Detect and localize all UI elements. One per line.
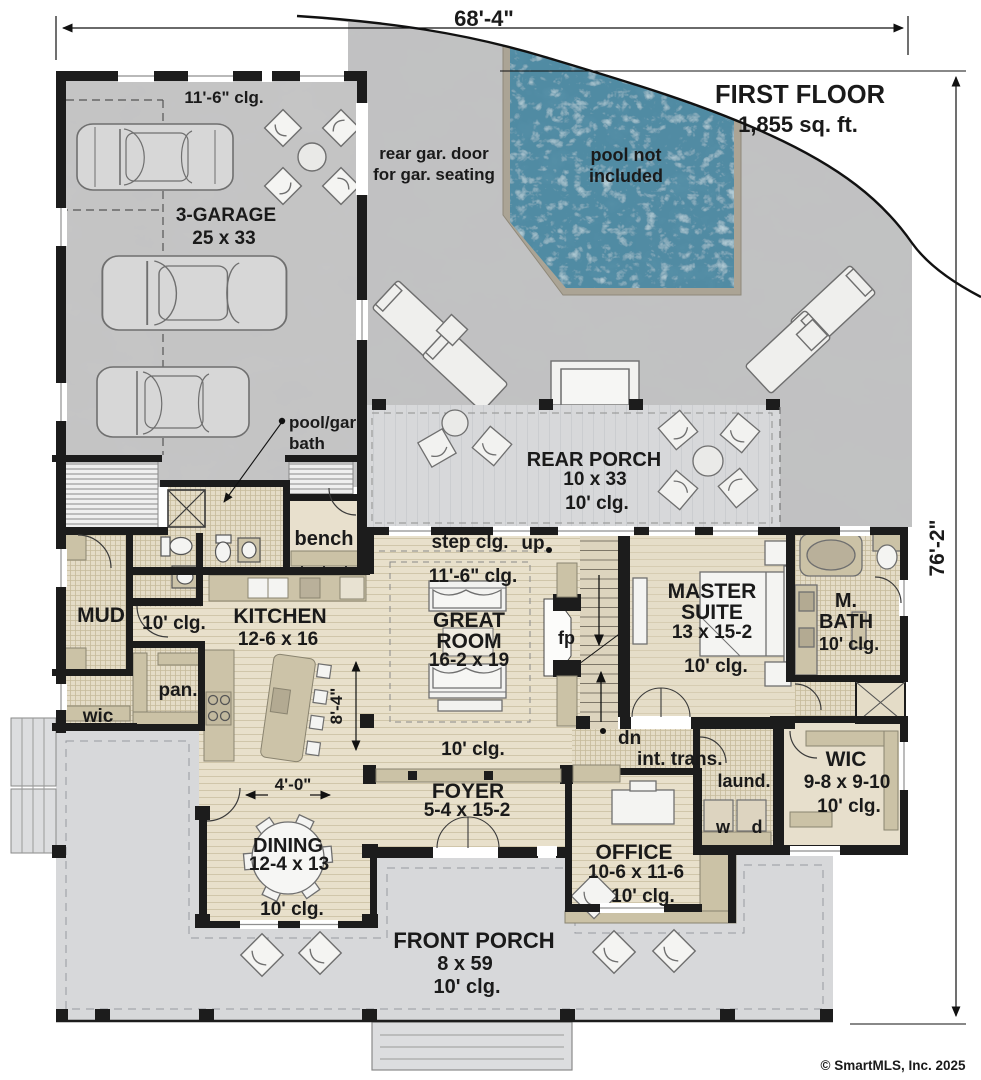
svg-text:25 x 33: 25 x 33 xyxy=(192,228,255,249)
svg-text:bath: bath xyxy=(289,434,325,453)
svg-text:13 x 15-2: 13 x 15-2 xyxy=(672,622,752,643)
svg-text:© SmartMLS, Inc. 2025: © SmartMLS, Inc. 2025 xyxy=(821,1058,966,1073)
svg-text:w: w xyxy=(715,817,731,837)
svg-text:OFFICE: OFFICE xyxy=(596,841,673,864)
svg-text:10' clg.: 10' clg. xyxy=(684,656,748,677)
svg-text:68'-4": 68'-4" xyxy=(454,6,514,31)
svg-text:FRONT PORCH: FRONT PORCH xyxy=(393,928,554,953)
svg-text:10-6 x 11-6: 10-6 x 11-6 xyxy=(588,862,684,883)
svg-text:wic: wic xyxy=(82,706,114,727)
svg-text:12-4 x 13: 12-4 x 13 xyxy=(249,854,329,875)
svg-text:10' clg.: 10' clg. xyxy=(611,886,675,907)
svg-text:d: d xyxy=(752,817,763,837)
svg-text:M.: M. xyxy=(835,590,857,612)
svg-text:76'-2": 76'-2" xyxy=(926,520,949,577)
svg-text:fp: fp xyxy=(558,628,575,648)
svg-text:WIC: WIC xyxy=(826,748,867,771)
svg-text:KITCHEN: KITCHEN xyxy=(233,605,326,628)
svg-text:rear gar. door: rear gar. door xyxy=(379,144,489,163)
svg-text:12-6 x 16: 12-6 x 16 xyxy=(238,629,318,650)
svg-text:4'-0": 4'-0" xyxy=(275,775,312,794)
svg-text:10 x 33: 10 x 33 xyxy=(563,469,626,490)
svg-text:bench: bench xyxy=(295,528,354,550)
svg-text:up: up xyxy=(521,533,544,554)
svg-text:int. trans.: int. trans. xyxy=(637,749,723,770)
svg-text:10' clg.: 10' clg. xyxy=(817,796,881,817)
svg-text:1,855 sq. ft.: 1,855 sq. ft. xyxy=(738,112,858,137)
svg-text:included: included xyxy=(589,166,663,186)
svg-text:MUD: MUD xyxy=(77,604,125,627)
svg-text:BATH: BATH xyxy=(819,611,873,633)
svg-text:for gar. seating: for gar. seating xyxy=(373,165,495,184)
svg-text:step clg.: step clg. xyxy=(431,532,508,553)
svg-text:GREAT: GREAT xyxy=(433,609,505,632)
svg-text:REAR PORCH: REAR PORCH xyxy=(527,449,661,471)
svg-text:pool/gar: pool/gar xyxy=(289,413,356,432)
svg-text:pan.: pan. xyxy=(158,680,197,701)
svg-text:11'-6" clg.: 11'-6" clg. xyxy=(184,88,263,107)
svg-text:10' clg.: 10' clg. xyxy=(433,976,500,998)
svg-text:pool not: pool not xyxy=(591,145,662,165)
svg-text:dn: dn xyxy=(618,728,641,749)
svg-text:9-8 x 9-10: 9-8 x 9-10 xyxy=(804,772,891,793)
svg-text:8'-4": 8'-4" xyxy=(327,688,346,725)
svg-text:SUITE: SUITE xyxy=(681,601,743,624)
svg-text:10' clg.: 10' clg. xyxy=(565,493,629,514)
svg-text:10' clg.: 10' clg. xyxy=(819,634,879,654)
svg-text:FIRST FLOOR: FIRST FLOOR xyxy=(715,81,885,109)
svg-text:10' clg.: 10' clg. xyxy=(142,613,206,634)
svg-text:10' clg.: 10' clg. xyxy=(260,899,324,920)
svg-text:3-GARAGE: 3-GARAGE xyxy=(176,205,276,226)
svg-text:laund.: laund. xyxy=(718,771,771,791)
svg-text:5-4 x 15-2: 5-4 x 15-2 xyxy=(424,800,511,821)
svg-text:16-2 x 19: 16-2 x 19 xyxy=(429,650,509,671)
svg-text:10' clg.: 10' clg. xyxy=(441,739,505,760)
svg-text:MASTER: MASTER xyxy=(668,580,757,603)
svg-text:8 x 59: 8 x 59 xyxy=(437,953,493,975)
svg-text:11'-6" clg.: 11'-6" clg. xyxy=(429,566,518,587)
